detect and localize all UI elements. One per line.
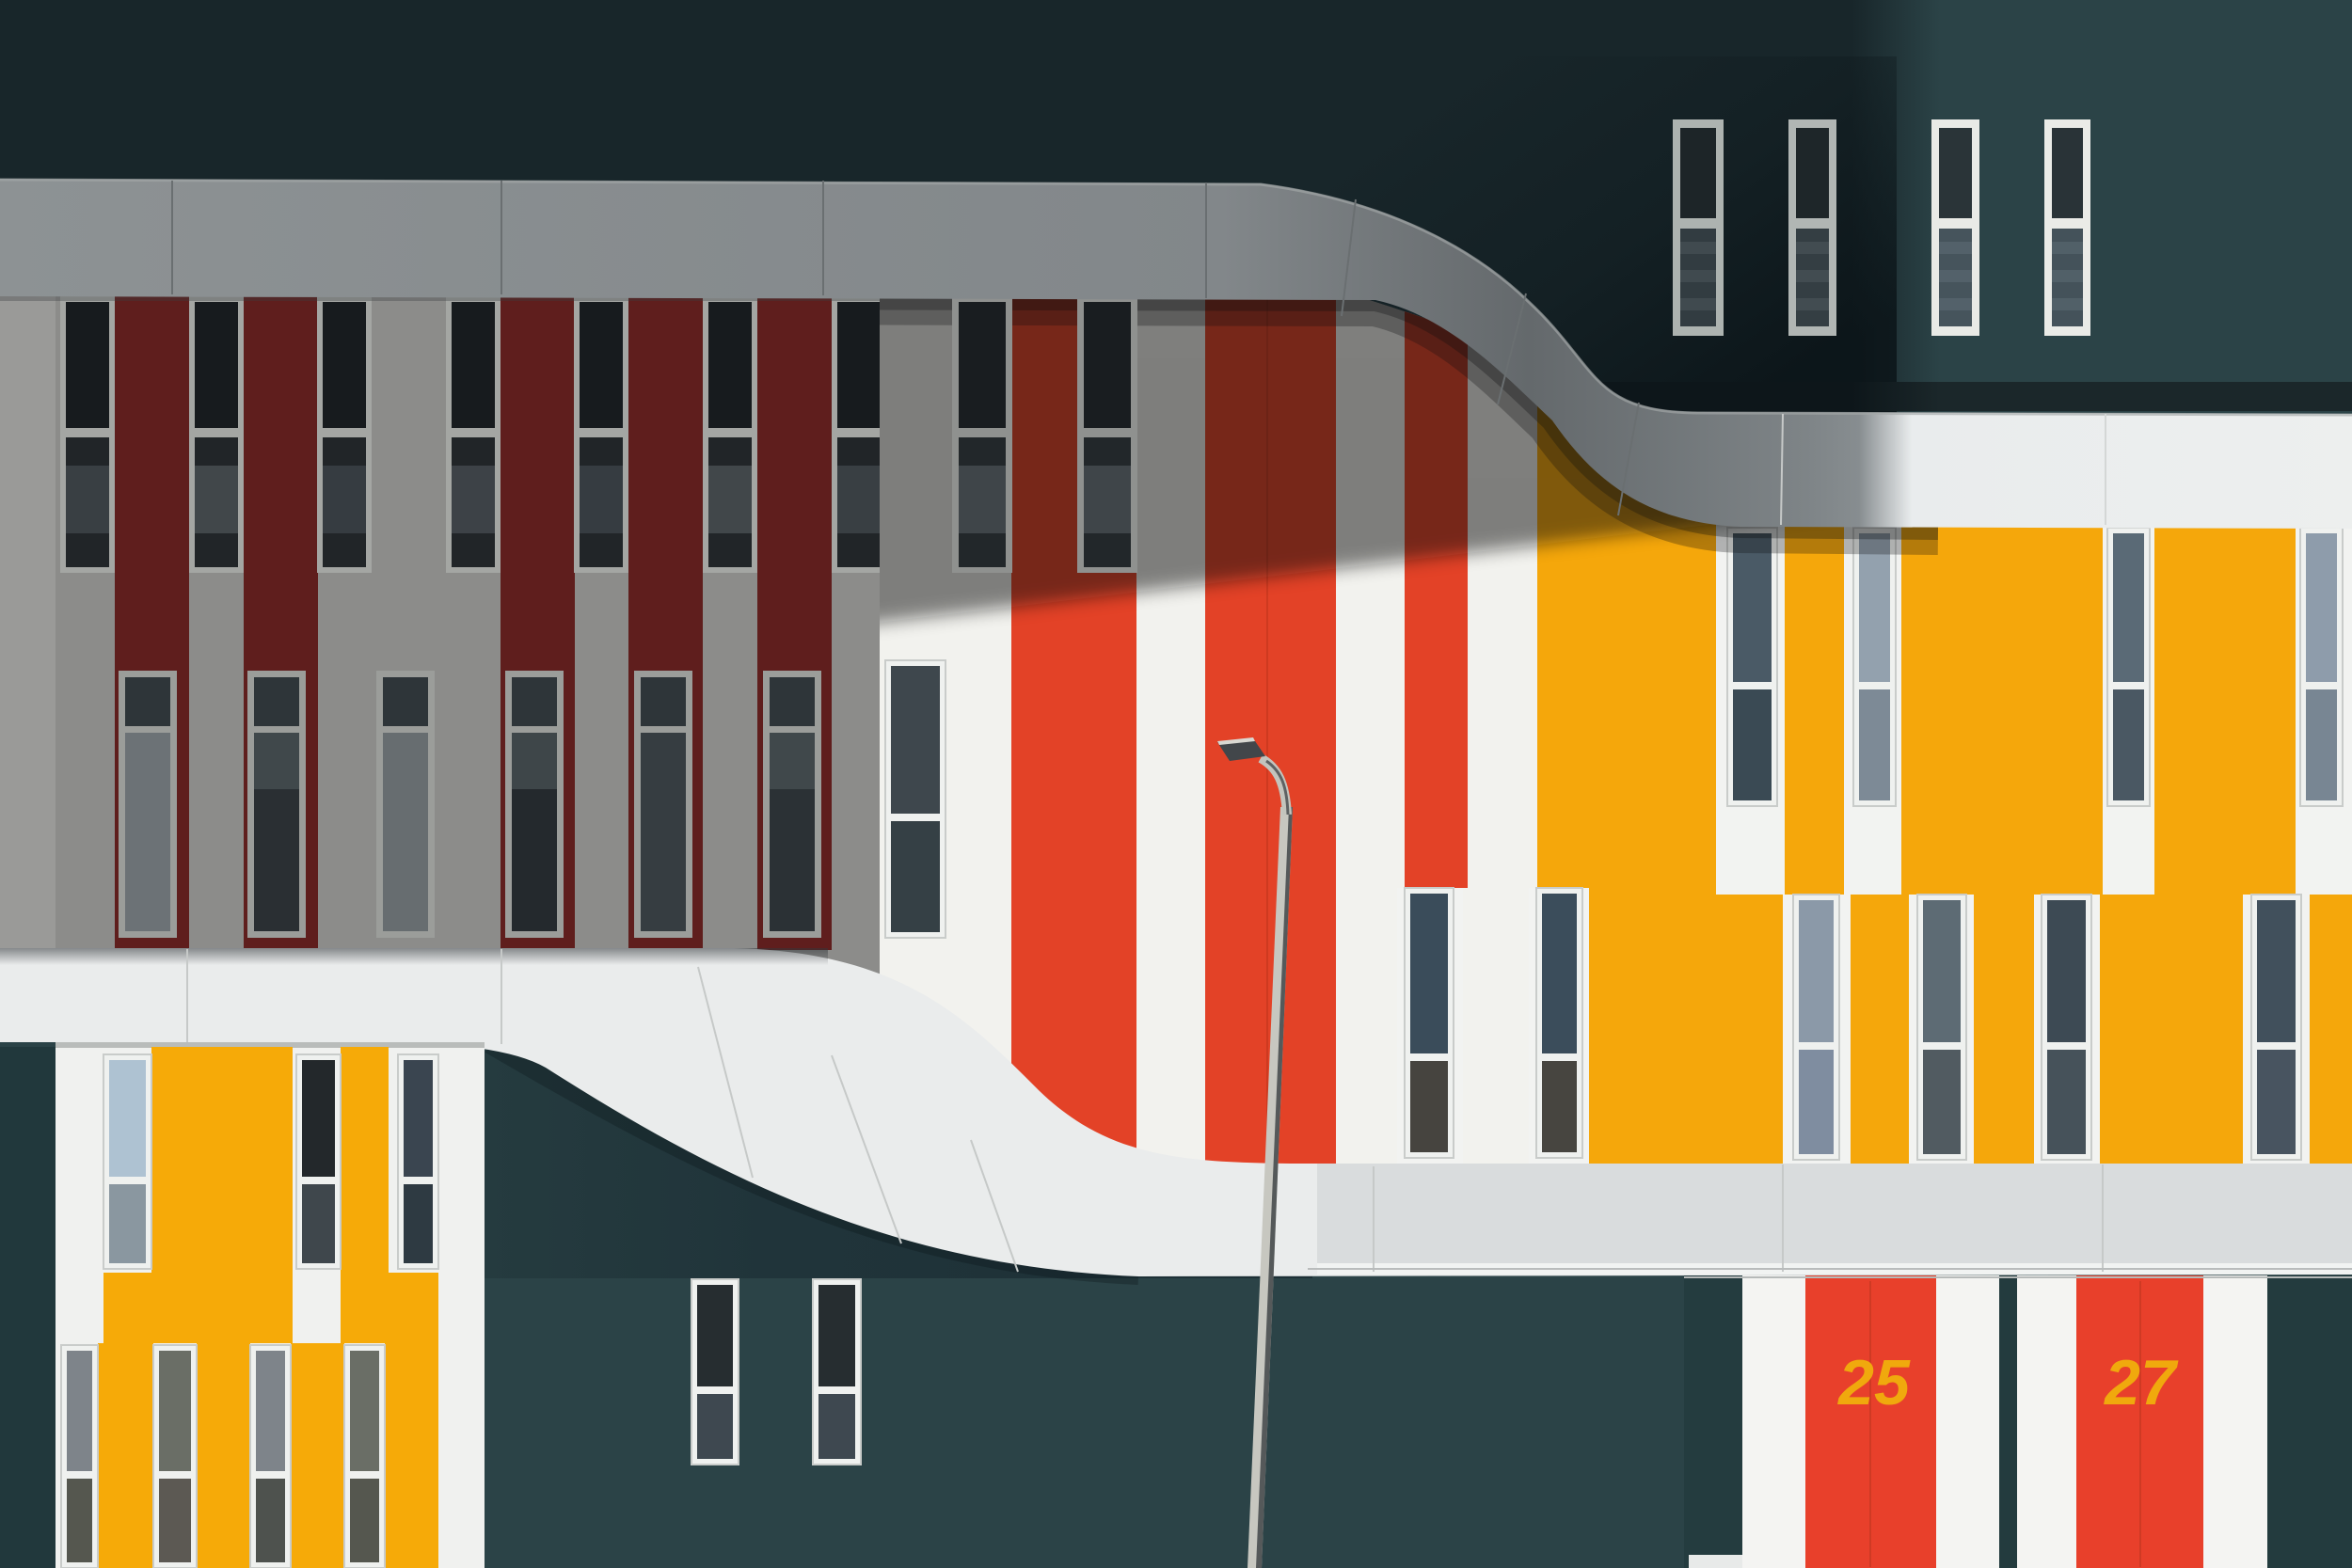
svg-text:27: 27: [2103, 1347, 2179, 1418]
svg-text:25: 25: [1836, 1347, 1911, 1418]
